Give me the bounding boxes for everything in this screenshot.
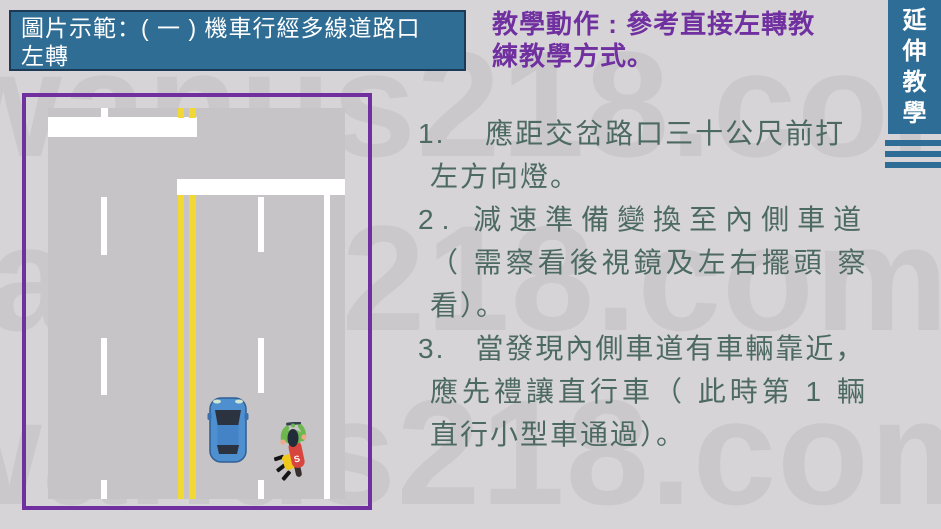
road-diagram: S <box>22 93 372 510</box>
stop-line-far-side <box>48 117 197 137</box>
lane-dash <box>101 480 108 499</box>
double-yellow-line-top-left <box>178 108 184 118</box>
slide: wanus218.com wanus218.com wanus218.com 圖… <box>0 0 941 529</box>
teaching-action-line-1: 教學動作 : 參考直接左轉教 <box>492 8 872 40</box>
step-2-line-3: 看）。 <box>418 284 888 327</box>
step-1-line-1: 1. 應距交岔路口三十公尺前打 <box>418 112 888 155</box>
step-3-line-2: 應先禮讓直行車（ 此時第 1 輛 <box>418 370 888 413</box>
rider-hand-left <box>280 439 285 444</box>
tab-char-1: 延 <box>888 5 941 36</box>
scooter-rider: S <box>274 422 310 484</box>
car-topview <box>207 396 249 464</box>
step-2-line-1: 2. 減速準備變換至內側車道 <box>418 198 888 241</box>
lane-dash <box>101 338 108 395</box>
tab-stripe <box>885 140 941 146</box>
step-1-line-2: 左方向燈。 <box>418 155 888 198</box>
step-3-line-3: 直行小型車通過）。 <box>418 413 888 456</box>
slide-title-line-2: 左轉 <box>21 42 458 70</box>
double-yellow-line-top-right <box>189 108 196 118</box>
lane-dash <box>258 480 264 499</box>
teaching-action-heading: 教學動作 : 參考直接左轉教 練教學方式。 <box>492 8 872 72</box>
step-2-line-2: （ 需察看後視鏡及左右擺頭 察 <box>418 241 888 284</box>
tab-stripe <box>885 151 941 157</box>
edge-line <box>324 195 331 499</box>
double-yellow-line-right <box>189 195 196 499</box>
rider-helmet-top <box>288 429 299 447</box>
slide-title-box: 圖片示範：( 一 ) 機車行經多線道路口 左轉 <box>9 10 466 71</box>
tab-stripe <box>885 162 941 168</box>
lane-dash <box>101 197 108 255</box>
slide-title-line-1: 圖片示範：( 一 ) 機車行經多線道路口 <box>21 14 458 42</box>
tab-char-3: 教 <box>888 67 941 98</box>
tab-char-2: 伸 <box>888 36 941 67</box>
lane-dash <box>258 197 264 252</box>
tab-char-4: 學 <box>888 98 941 129</box>
stop-line-near-side <box>177 179 345 195</box>
extended-teaching-tab: 延 伸 教 學 <box>888 0 941 134</box>
lane-dash <box>258 338 264 393</box>
rider-hand-right <box>301 434 306 439</box>
teaching-action-line-2: 練教學方式。 <box>492 40 872 72</box>
road-surface: S <box>48 108 345 499</box>
instruction-list: 1. 應距交岔路口三十公尺前打 左方向燈。 2. 減速準備變換至內側車道 （ 需… <box>418 112 888 456</box>
double-yellow-line-left <box>178 195 184 499</box>
lane-dash-top <box>101 108 108 117</box>
step-3-line-1: 3. 當發現內側車道有車輛靠近， <box>418 327 888 370</box>
